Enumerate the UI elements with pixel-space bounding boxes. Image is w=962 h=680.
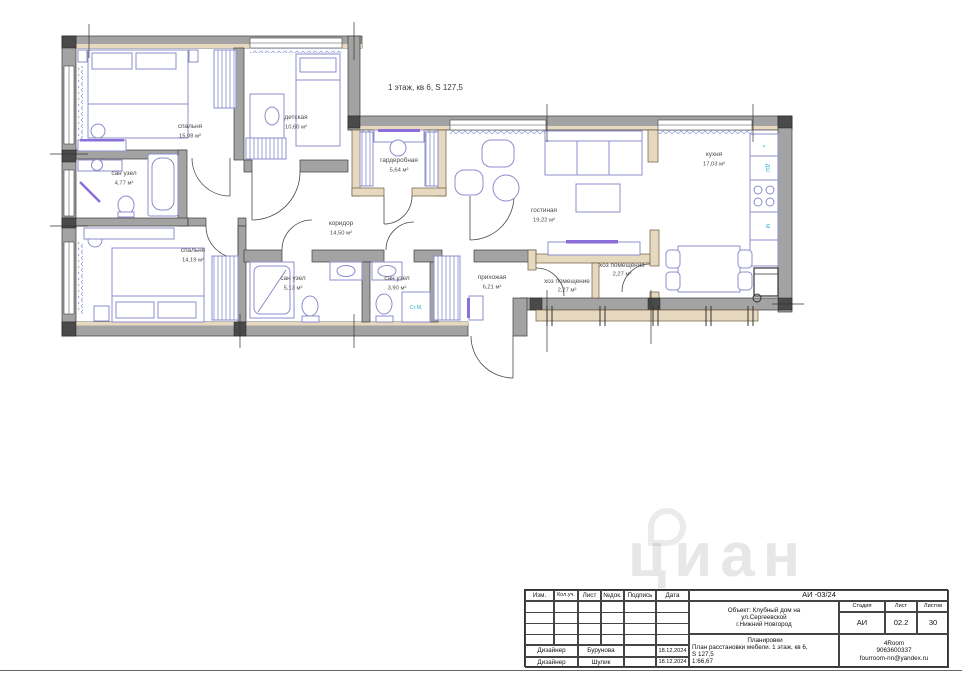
tb-sheets-label: Листов [917, 601, 949, 612]
furniture-kitchen: × ДШ М [666, 134, 778, 302]
furniture-bathroom-3: Ст.М. [372, 262, 430, 322]
svg-text:4,77 м²: 4,77 м² [115, 181, 134, 187]
tb-object-line3: г.Нижний Новгород [736, 621, 791, 628]
room-label-bathroom-3: сан узел3,90 м² [384, 275, 409, 292]
room-label-utility-2: хоз помещение2,27 м² [599, 262, 645, 278]
tb-company-name: 4Room [884, 640, 904, 647]
svg-text:2,27 м²: 2,27 м² [613, 272, 632, 278]
tb-sign-2 [624, 657, 656, 669]
svg-text:хоз помещение: хоз помещение [599, 262, 645, 269]
svg-text:гостиная: гостиная [531, 207, 558, 214]
room-label-living-room: гостиная19,22 м² [531, 207, 558, 224]
svg-text:сан узел: сан узел [280, 275, 305, 282]
tb-section-line2: S 127,5 [692, 651, 838, 658]
tb-grid-line [525, 612, 689, 613]
tb-sheet-value: 02.2 [885, 612, 917, 634]
svg-text:детская: детская [284, 114, 308, 121]
tb-object-line1: Объект: Клубный дом на [728, 607, 801, 614]
svg-text:сан узел: сан узел [111, 170, 136, 177]
tb-name-2: Шулик [578, 657, 624, 669]
furniture-bedroom-1 [78, 50, 236, 151]
floor-plan: 1 этаж, кв 6, S 127,5 [0, 0, 962, 560]
tb-scale: 1:66,67 [692, 658, 838, 665]
tb-sign-1 [624, 645, 656, 657]
tb-stage-value: АИ [839, 612, 885, 634]
tb-grid-line [525, 634, 689, 635]
svg-text:спальня: спальня [178, 123, 203, 130]
svg-text:5,13 м²: 5,13 м² [284, 286, 303, 292]
tb-col-podpis: Подпись [624, 590, 656, 601]
tb-company: 4Room 9063600337 fourroom-nn@yandex.ru [839, 634, 949, 668]
tb-name-1: Бурунова [578, 645, 624, 657]
room-label-kitchen: кухня17,03 м² [703, 151, 725, 168]
tb-doc-code: АИ -03/24 [689, 590, 949, 601]
tb-date-2: 18.12.2024 [656, 657, 689, 669]
room-label-wardrobe: гардеробная5,64 м² [380, 156, 418, 174]
tb-role-2: Дизайнер [525, 657, 578, 669]
tb-stage-label: Стадия [839, 601, 885, 612]
svg-text:3,90 м²: 3,90 м² [388, 286, 407, 292]
svg-text:14,50 м²: 14,50 м² [330, 231, 352, 237]
floorplan-page: циан 1 этаж, кв 6, S 127,5 [0, 0, 962, 680]
tb-col-list: Лист [578, 590, 601, 601]
svg-text:хоз помещение: хоз помещение [544, 278, 590, 285]
svg-text:17,03 м²: 17,03 м² [703, 162, 725, 168]
tb-section-title: Планировки [692, 637, 838, 644]
tb-sheets-value: 30 [917, 612, 949, 634]
tb-col-izm: Изм. [525, 590, 554, 601]
furniture-living-room [455, 131, 642, 255]
furniture-kids-room [246, 54, 340, 159]
tb-object: Объект: Клубный дом на ул.Сергеевской г.… [689, 601, 839, 634]
microwave-label: М [764, 224, 770, 228]
svg-text:сан узел: сан узел [384, 275, 409, 282]
furniture-bedroom-2 [84, 228, 238, 322]
furniture-hallway [434, 256, 483, 320]
svg-text:2,27 м²: 2,27 м² [558, 288, 577, 294]
svg-text:10,60 м²: 10,60 м² [285, 125, 307, 131]
plan-note: 1 этаж, кв 6, S 127,5 [388, 83, 463, 92]
tb-company-email: fourroom-nn@yandex.ru [860, 655, 928, 662]
svg-text:гардеробная: гардеробная [380, 156, 418, 164]
tb-col-ndok: №док. [601, 590, 624, 601]
svg-text:коридор: коридор [329, 220, 354, 227]
furniture-bathroom-2 [250, 262, 362, 322]
svg-text:кухня: кухня [706, 151, 723, 158]
svg-text:спальня: спальня [181, 247, 206, 254]
dishwasher-label: ДШ [764, 164, 770, 173]
frame-bottom-line [0, 670, 962, 671]
svg-text:14,19 м²: 14,19 м² [182, 258, 204, 264]
sink-mark: × [762, 144, 765, 150]
svg-text:19,22 м²: 19,22 м² [533, 218, 555, 224]
tb-sheet-label: Лист [885, 601, 917, 612]
tb-col-data: Дата [656, 590, 689, 601]
svg-text:15,08 м²: 15,08 м² [179, 134, 201, 140]
room-label-bathroom-1: сан узел4,77 м² [111, 170, 136, 187]
room-label-corridor: коридор14,50 м² [329, 220, 354, 237]
tb-role-1: Дизайнер [525, 645, 578, 657]
tb-grid-line [525, 623, 689, 624]
tb-section-line1: План расстановки мебели. 1 этаж, кв 6, [692, 644, 838, 651]
svg-text:5,64 м²: 5,64 м² [390, 168, 409, 174]
washer-label: Ст.М. [409, 305, 422, 311]
title-block: Изм. Кол.уч. Лист №док. Подпись Дата Диз… [524, 589, 948, 667]
room-label-hallway: прихожая6,21 м² [478, 274, 507, 291]
svg-text:6,21 м²: 6,21 м² [483, 285, 502, 291]
room-label-utility-1: хоз помещение2,27 м² [544, 278, 590, 294]
svg-text:прихожая: прихожая [478, 274, 507, 281]
tb-date-1: 18.12.2024 [656, 645, 689, 657]
tb-section: Планировки План расстановки мебели. 1 эт… [689, 634, 839, 668]
tb-company-phone: 9063600337 [876, 647, 911, 654]
tb-col-koluch: Кол.уч. [554, 590, 578, 601]
